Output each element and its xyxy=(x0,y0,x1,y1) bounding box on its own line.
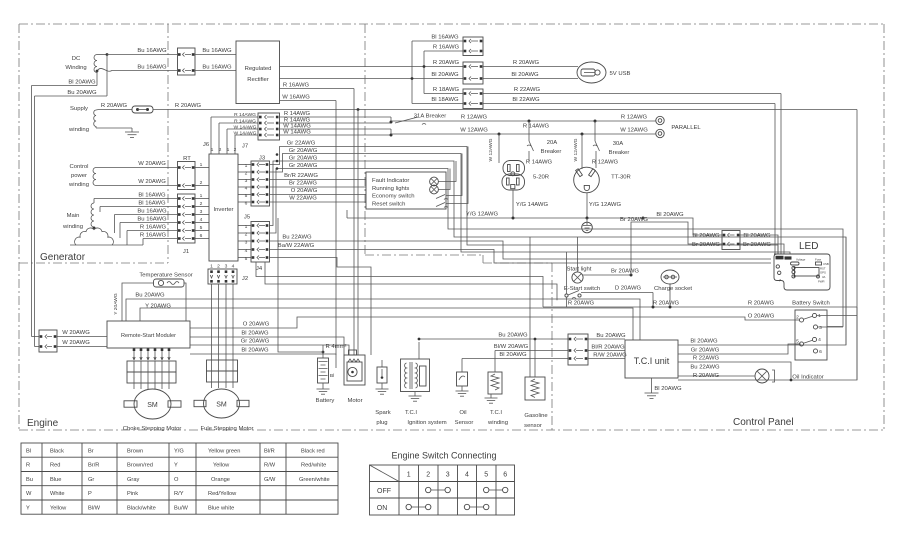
svg-text:Y/G 12AWG: Y/G 12AWG xyxy=(589,202,622,208)
svg-text:Control: Control xyxy=(70,164,89,170)
svg-text:6: 6 xyxy=(819,349,822,355)
svg-text:2: 2 xyxy=(245,171,248,177)
svg-text:R 22AWG: R 22AWG xyxy=(514,87,541,93)
svg-text:ON: ON xyxy=(377,505,388,512)
svg-text:J6: J6 xyxy=(203,142,210,148)
svg-text:Rectifier: Rectifier xyxy=(247,77,269,83)
svg-text:USB: USB xyxy=(823,262,829,266)
svg-text:R 20AWG: R 20AWG xyxy=(175,103,202,109)
svg-text:R 20AWG: R 20AWG xyxy=(653,301,680,307)
svg-text:Br 20AWG: Br 20AWG xyxy=(611,269,639,275)
svg-text:Red: Red xyxy=(50,463,60,469)
svg-text:Temperature Sensor: Temperature Sensor xyxy=(139,273,192,279)
svg-text:Fault Indicator: Fault Indicator xyxy=(372,178,409,184)
svg-text:winding: winding xyxy=(487,420,508,426)
svg-text:Bu 16AWG: Bu 16AWG xyxy=(202,65,232,71)
svg-text:Bl 20AWG: Bl 20AWG xyxy=(241,331,269,337)
svg-text:R 20AWG: R 20AWG xyxy=(513,60,540,66)
svg-text:Bu 20AWG: Bu 20AWG xyxy=(498,333,528,339)
svg-text:Engine: Engine xyxy=(27,418,59,429)
svg-text:Y/G 14AWG: Y/G 14AWG xyxy=(516,202,549,208)
svg-text:Y/G 12AWG: Y/G 12AWG xyxy=(466,212,499,218)
svg-text:Reset switch: Reset switch xyxy=(372,202,405,208)
svg-text:Gr 20AWG: Gr 20AWG xyxy=(289,163,318,169)
svg-text:Br/R: Br/R xyxy=(88,463,99,469)
svg-text:TT-30R: TT-30R xyxy=(611,175,631,181)
svg-text:3: 3 xyxy=(245,178,248,184)
svg-text:Br 20AWG: Br 20AWG xyxy=(692,242,720,248)
svg-text:W 22AWG: W 22AWG xyxy=(289,196,317,202)
svg-text:Fuse: Fuse xyxy=(815,258,822,262)
svg-text:Bl 20AWG: Bl 20AWG xyxy=(654,386,682,392)
svg-text:Oil Indicator: Oil Indicator xyxy=(792,375,823,381)
svg-text:Regulated: Regulated xyxy=(245,66,272,72)
svg-text:Brown: Brown xyxy=(127,449,143,455)
svg-text:W 14AWG: W 14AWG xyxy=(283,130,311,136)
svg-text:Start light: Start light xyxy=(567,267,592,273)
svg-text:White: White xyxy=(50,491,65,497)
svg-text:T.C.I: T.C.I xyxy=(405,410,417,416)
svg-text:3: 3 xyxy=(245,240,248,246)
svg-text:O 20AWG: O 20AWG xyxy=(748,314,775,320)
svg-text:W: W xyxy=(26,491,32,497)
svg-text:4: 4 xyxy=(200,217,203,223)
svg-text:R 18AWG: R 18AWG xyxy=(433,87,460,93)
svg-text:P: P xyxy=(88,491,92,497)
svg-text:Bl: Bl xyxy=(26,449,31,455)
svg-text:R 14AWG: R 14AWG xyxy=(284,111,311,117)
svg-text:O 20AWG: O 20AWG xyxy=(243,322,270,328)
svg-text:W 12AWG: W 12AWG xyxy=(488,138,494,161)
svg-text:R 12AWG: R 12AWG xyxy=(461,115,488,121)
svg-text:Bl 16AWG: Bl 16AWG xyxy=(138,193,166,199)
svg-text:W 12AWG: W 12AWG xyxy=(620,128,648,134)
svg-text:Br 20AWG: Br 20AWG xyxy=(743,242,771,248)
svg-text:Bl 22AWG: Bl 22AWG xyxy=(512,97,540,103)
svg-text:Y 20AWG: Y 20AWG xyxy=(113,293,119,315)
svg-text:W 14AWG: W 14AWG xyxy=(234,125,257,131)
svg-text:Black red: Black red xyxy=(301,449,325,455)
svg-text:Battery: Battery xyxy=(316,398,335,404)
svg-text:J2: J2 xyxy=(242,276,248,282)
svg-text:Control Panel: Control Panel xyxy=(733,417,794,428)
svg-text:Spark: Spark xyxy=(375,410,390,416)
svg-text:Bu/W: Bu/W xyxy=(174,506,189,512)
svg-text:W 12AWG: W 12AWG xyxy=(573,138,579,161)
svg-text:Bl 20AWG: Bl 20AWG xyxy=(690,339,718,345)
svg-text:Bu 16AWG: Bu 16AWG xyxy=(202,48,232,54)
svg-text:Pink: Pink xyxy=(127,491,138,497)
svg-text:sensor: sensor xyxy=(524,423,542,429)
svg-text:1: 1 xyxy=(818,313,821,319)
svg-text:Br 22AWG: Br 22AWG xyxy=(289,181,317,187)
svg-text:Gr 20AWG: Gr 20AWG xyxy=(241,339,270,345)
svg-text:Oil: Oil xyxy=(459,410,466,416)
svg-text:winding: winding xyxy=(68,182,89,188)
svg-text:R 20AWG: R 20AWG xyxy=(433,60,460,66)
svg-text:DC: DC xyxy=(72,56,81,62)
svg-text:Gray: Gray xyxy=(127,477,139,483)
svg-text:2: 2 xyxy=(200,201,203,207)
svg-text:Bl/W 20AWG: Bl/W 20AWG xyxy=(494,344,529,350)
svg-text:Br/R 22AWG: Br/R 22AWG xyxy=(284,173,318,179)
svg-text:Yellow: Yellow xyxy=(50,506,67,512)
svg-text:31A Breaker: 31A Breaker xyxy=(414,114,446,120)
svg-text:R/Y: R/Y xyxy=(174,491,184,497)
svg-text:5V USB: 5V USB xyxy=(610,71,631,77)
svg-text:Bl 16AWG: Bl 16AWG xyxy=(138,201,166,207)
svg-text:W 20AWG: W 20AWG xyxy=(138,161,166,167)
svg-text:1: 1 xyxy=(200,193,203,199)
svg-text:Bl 18AWG: Bl 18AWG xyxy=(431,97,459,103)
svg-text:R 14AWG: R 14AWG xyxy=(234,119,256,125)
svg-text:LED: LED xyxy=(799,241,818,252)
svg-text:SM: SM xyxy=(147,402,158,409)
svg-text:SM: SM xyxy=(216,402,227,409)
svg-text:Running lights: Running lights xyxy=(372,186,409,192)
svg-text:4: 4 xyxy=(245,186,248,192)
svg-text:J4: J4 xyxy=(256,266,263,272)
svg-text:Y: Y xyxy=(26,506,30,512)
svg-text:Green/white: Green/white xyxy=(299,477,330,483)
svg-text:Inverter: Inverter xyxy=(214,207,234,213)
svg-text:Bl 20AWG: Bl 20AWG xyxy=(241,348,269,354)
svg-text:Main: Main xyxy=(67,213,80,219)
svg-text:Breaker: Breaker xyxy=(541,149,562,155)
svg-text:R 22AWG: R 22AWG xyxy=(693,356,720,362)
svg-text:W 12AWG: W 12AWG xyxy=(460,128,488,134)
svg-text:Orange: Orange xyxy=(211,477,230,483)
svg-text:Sensor: Sensor xyxy=(455,420,474,426)
svg-text:Breaker: Breaker xyxy=(609,150,630,156)
svg-text:5: 5 xyxy=(200,225,203,231)
svg-text:4: 4 xyxy=(245,248,248,254)
svg-text:D 20AWG: D 20AWG xyxy=(615,286,642,292)
svg-text:Choke Stepping Motor: Choke Stepping Motor xyxy=(123,426,182,432)
svg-text:Y/G: Y/G xyxy=(174,449,184,455)
svg-text:Gr 20AWG: Gr 20AWG xyxy=(691,348,720,354)
svg-text:Motor: Motor xyxy=(347,398,362,404)
svg-text:20A: 20A xyxy=(547,140,558,146)
svg-text:Bu 16AWG: Bu 16AWG xyxy=(137,48,167,54)
svg-text:Remote-Start Moduler: Remote-Start Moduler xyxy=(121,333,176,339)
svg-text:R/W 20AWG: R/W 20AWG xyxy=(593,353,627,359)
svg-text:Gr: Gr xyxy=(88,477,94,483)
svg-text:winding: winding xyxy=(68,127,89,133)
svg-text:PARALLEL: PARALLEL xyxy=(671,125,701,131)
svg-text:7: 7 xyxy=(779,279,781,283)
svg-text:Gasoline: Gasoline xyxy=(524,413,548,419)
svg-text:Bl 16AWG: Bl 16AWG xyxy=(431,35,459,41)
svg-text:Bu 20AWG: Bu 20AWG xyxy=(67,90,97,96)
svg-text:Gr 20AWG: Gr 20AWG xyxy=(289,148,318,154)
svg-text:2: 2 xyxy=(245,232,248,238)
svg-text:Winding: Winding xyxy=(65,65,86,71)
svg-text:3: 3 xyxy=(446,472,450,479)
svg-text:J1: J1 xyxy=(183,249,189,255)
svg-text:Y 20AWG: Y 20AWG xyxy=(145,304,171,310)
svg-text:J7: J7 xyxy=(242,144,248,150)
svg-text:Yellow: Yellow xyxy=(213,463,230,469)
svg-text:power: power xyxy=(71,173,87,179)
svg-text:Blue: Blue xyxy=(50,477,61,483)
svg-text:5: 5 xyxy=(484,472,488,479)
svg-text:Yellow green: Yellow green xyxy=(208,449,240,455)
svg-text:2: 2 xyxy=(426,472,430,479)
svg-text:E-Start switch: E-Start switch xyxy=(564,286,600,292)
svg-text:Bu 16AWG: Bu 16AWG xyxy=(137,217,167,223)
svg-text:Economy switch: Economy switch xyxy=(372,194,415,200)
svg-text:Charge socket: Charge socket xyxy=(654,286,692,292)
svg-text:Black/white: Black/white xyxy=(127,506,156,512)
svg-text:PWR: PWR xyxy=(818,280,825,284)
svg-text:R 20AWG: R 20AWG xyxy=(101,103,128,109)
svg-text:O 20AWG: O 20AWG xyxy=(291,188,318,194)
svg-text:R 4mm²: R 4mm² xyxy=(326,344,347,350)
svg-text:Blue white: Blue white xyxy=(208,506,234,512)
svg-text:1: 1 xyxy=(200,162,203,168)
svg-text:R 20AWG: R 20AWG xyxy=(568,301,595,307)
svg-text:Bl/R: Bl/R xyxy=(264,449,275,455)
svg-text:Generator: Generator xyxy=(40,252,86,263)
svg-text:GPS: GPS xyxy=(820,271,826,275)
svg-text:OFF: OFF xyxy=(377,488,391,495)
svg-text:6: 6 xyxy=(503,472,507,479)
svg-text:4: 4 xyxy=(465,472,469,479)
svg-text:R 12AWG: R 12AWG xyxy=(621,115,648,121)
svg-text:3: 3 xyxy=(200,209,203,215)
svg-text:Bl/W: Bl/W xyxy=(88,506,101,512)
svg-text:W 20AWG: W 20AWG xyxy=(62,330,90,336)
svg-text:Bu: Bu xyxy=(26,477,33,483)
svg-text:Battery Switch: Battery Switch xyxy=(792,301,830,307)
svg-text:winding: winding xyxy=(62,224,83,230)
svg-text:Red/white: Red/white xyxy=(301,463,326,469)
svg-text:R 16AWG: R 16AWG xyxy=(433,45,460,51)
svg-text:Ignition system: Ignition system xyxy=(407,420,446,426)
svg-text:5: 5 xyxy=(245,256,248,262)
svg-text:Fule Stepping Motor: Fule Stepping Motor xyxy=(200,426,253,432)
svg-text:Bu 16AWG: Bu 16AWG xyxy=(137,65,167,71)
svg-text:Bl 20AWG: Bl 20AWG xyxy=(743,233,771,239)
svg-text:6: 6 xyxy=(200,233,203,239)
svg-text:1: 1 xyxy=(245,163,248,169)
svg-text:Bu 22AWG: Bu 22AWG xyxy=(690,365,720,371)
svg-text:W 20AWG: W 20AWG xyxy=(138,179,166,185)
svg-text:R 14AWG: R 14AWG xyxy=(523,124,550,130)
svg-text:Black: Black xyxy=(50,449,64,455)
svg-text:T.C.I: T.C.I xyxy=(490,410,502,416)
svg-text:Bl 20AWG: Bl 20AWG xyxy=(692,233,720,239)
svg-text:Br: Br xyxy=(88,449,94,455)
svg-text:Y: Y xyxy=(174,463,178,469)
svg-text:6: 6 xyxy=(245,201,248,207)
svg-text:30A: 30A xyxy=(613,141,624,147)
svg-text:R 20AWG: R 20AWG xyxy=(693,373,720,379)
svg-text:Bl 20AWG: Bl 20AWG xyxy=(656,212,684,218)
svg-text:Supply: Supply xyxy=(70,106,88,112)
svg-text:G/W: G/W xyxy=(264,477,276,483)
svg-text:Bu 20AWG: Bu 20AWG xyxy=(596,333,626,339)
svg-text:W 20AWG: W 20AWG xyxy=(62,340,90,346)
svg-text:plug: plug xyxy=(376,420,387,426)
svg-text:5-20R: 5-20R xyxy=(533,175,549,181)
svg-text:R: R xyxy=(26,463,30,469)
svg-text:3: 3 xyxy=(819,325,822,331)
svg-text:R 16AWG: R 16AWG xyxy=(140,225,167,231)
svg-text:Bl 20AWG: Bl 20AWG xyxy=(499,352,527,358)
svg-text:Bl 20AWG: Bl 20AWG xyxy=(431,72,459,78)
svg-text:3A: 3A xyxy=(822,275,826,279)
svg-text:Engine Switch Connecting: Engine Switch Connecting xyxy=(391,451,496,461)
svg-text:2: 2 xyxy=(200,180,203,186)
svg-text:Bl 20AWG: Bl 20AWG xyxy=(511,72,539,78)
svg-text:R 12AWG: R 12AWG xyxy=(592,160,619,166)
svg-text:T.C.I unit: T.C.I unit xyxy=(634,356,670,366)
svg-text:Voltage: Voltage xyxy=(796,258,806,262)
svg-text:W 16AWG: W 16AWG xyxy=(282,95,310,101)
svg-text:Gr 22AWG: Gr 22AWG xyxy=(287,141,316,147)
svg-text:Ba/W 22AWG: Ba/W 22AWG xyxy=(278,243,315,249)
svg-text:R 20AWG: R 20AWG xyxy=(748,301,775,307)
svg-text:O: O xyxy=(174,477,179,483)
svg-text:Brown/red: Brown/red xyxy=(127,463,153,469)
svg-text:1: 1 xyxy=(245,224,248,230)
svg-text:Bu 22AWG: Bu 22AWG xyxy=(282,235,312,241)
svg-text:R 16AWG: R 16AWG xyxy=(140,233,167,239)
svg-text:R 14AWG: R 14AWG xyxy=(234,112,256,118)
svg-text:R 14AWG: R 14AWG xyxy=(526,160,553,166)
svg-text:R 16AWG: R 16AWG xyxy=(283,83,310,89)
svg-text:5: 5 xyxy=(245,193,248,199)
svg-text:Red/Yellow: Red/Yellow xyxy=(208,491,237,497)
svg-text:R/W: R/W xyxy=(264,463,276,469)
svg-text:Bl 20AWG: Bl 20AWG xyxy=(68,80,96,86)
svg-text:Bu 20AWG: Bu 20AWG xyxy=(135,293,165,299)
svg-text:4: 4 xyxy=(818,337,821,343)
svg-text:J5: J5 xyxy=(244,215,251,221)
svg-text:Bl/R 20AWG: Bl/R 20AWG xyxy=(591,345,625,351)
svg-text:W 14AWG: W 14AWG xyxy=(234,131,257,137)
svg-text:Gr 20AWG: Gr 20AWG xyxy=(289,156,318,162)
svg-text:Bl: Bl xyxy=(330,373,334,379)
svg-text:Bu 16AWG: Bu 16AWG xyxy=(137,209,167,215)
svg-text:1: 1 xyxy=(407,472,411,479)
